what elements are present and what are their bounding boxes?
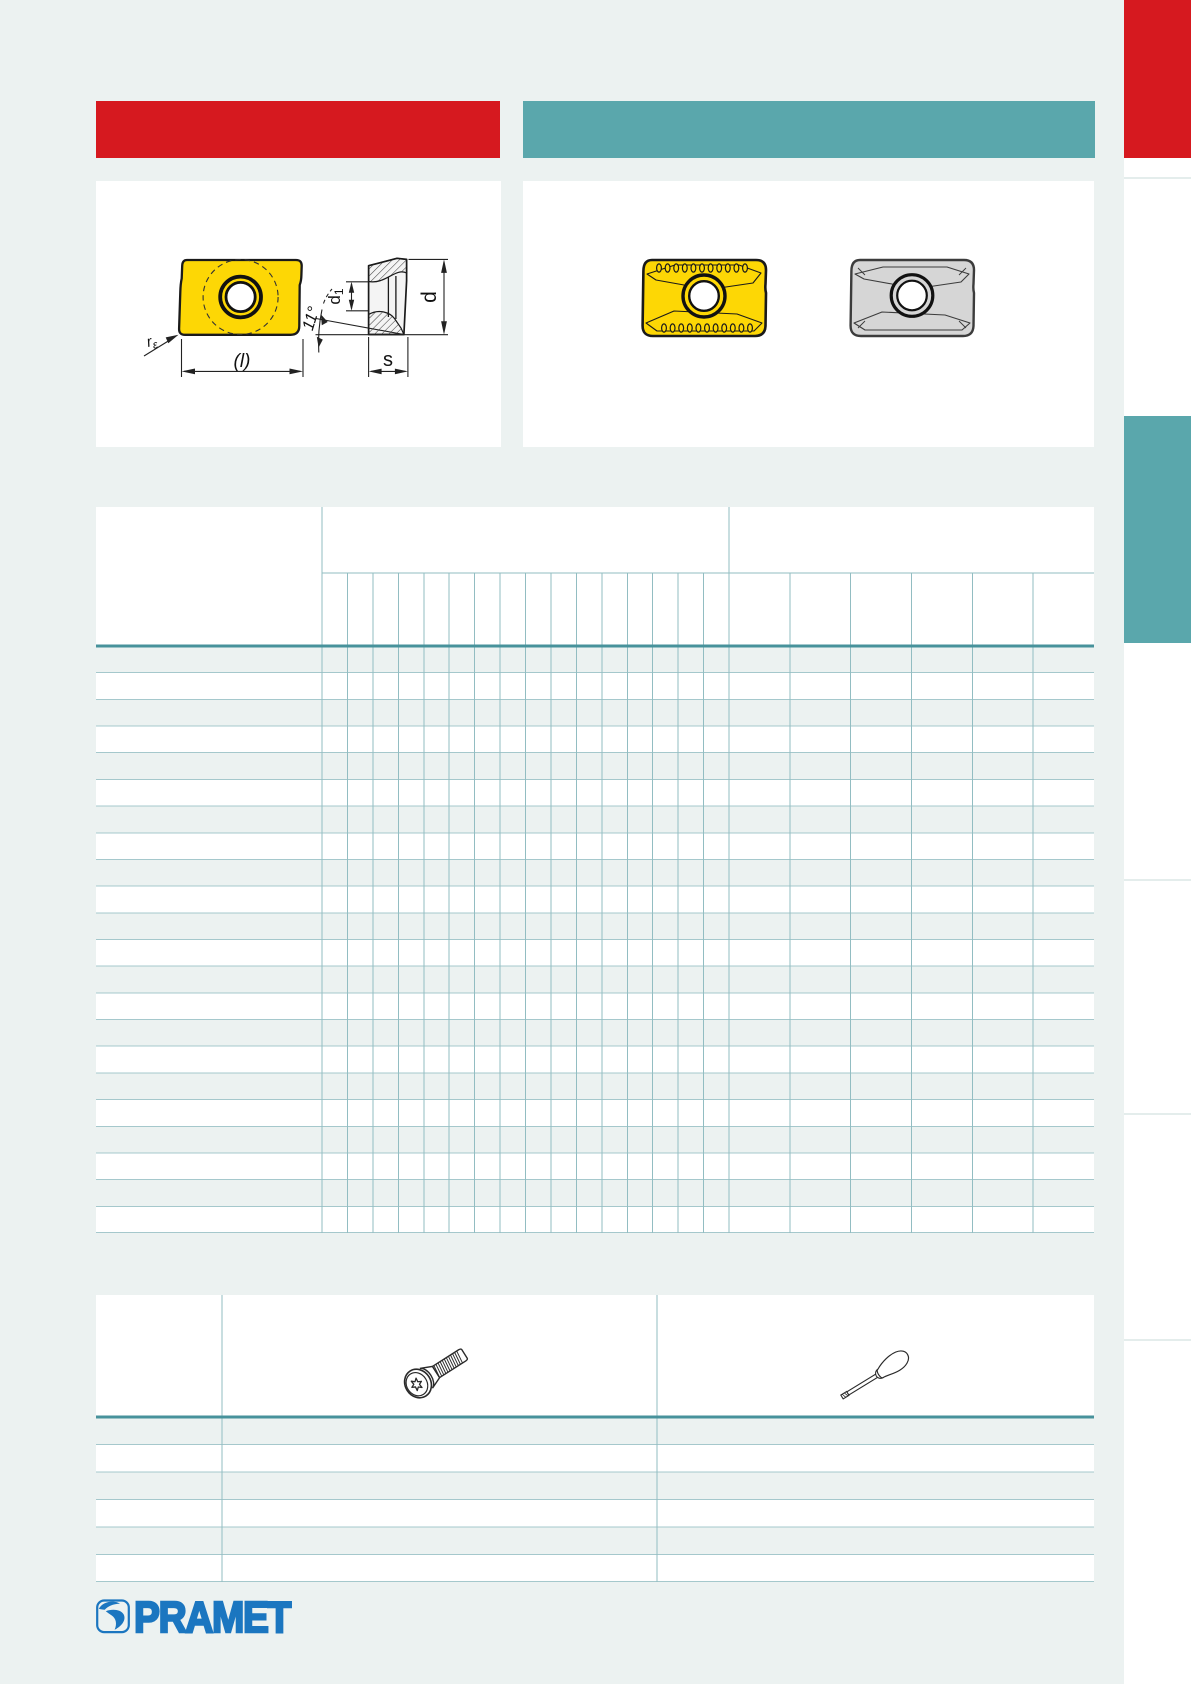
svg-text:11°: 11°	[299, 304, 323, 332]
svg-text:s: s	[383, 349, 393, 371]
svg-text:rε: rε	[145, 332, 159, 353]
svg-text:d1: d1	[325, 288, 346, 304]
svg-text:PRAMET: PRAMET	[134, 1597, 291, 1637]
svg-text:d: d	[418, 291, 441, 303]
svg-text:(l): (l)	[234, 351, 251, 372]
